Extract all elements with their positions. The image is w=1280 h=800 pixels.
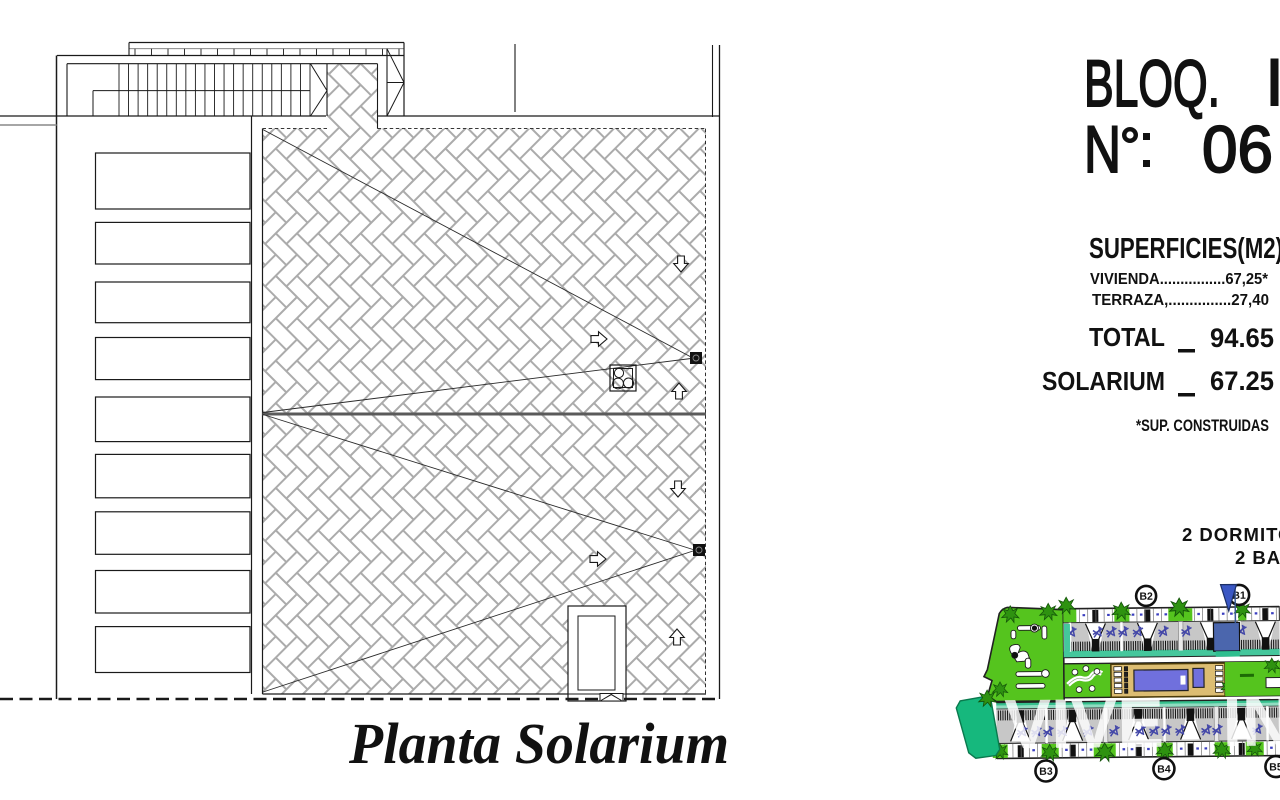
svg-text:B2: B2 <box>1139 591 1153 603</box>
svg-text:SOLARIUM: SOLARIUM <box>1042 368 1165 396</box>
svg-text:B5: B5 <box>1269 761 1280 773</box>
svg-text:N: N <box>1084 112 1121 186</box>
svg-text:TERRAZA,...............27,40: TERRAZA,...............27,40 <box>1092 292 1269 309</box>
svg-text:2 BAÑO: 2 BAÑO <box>1235 547 1280 568</box>
svg-text:SUPERFICIES(M2): SUPERFICIES(M2) <box>1089 233 1280 265</box>
svg-text:06: 06 <box>1202 112 1273 186</box>
svg-text:67.25: 67.25 <box>1210 366 1274 396</box>
svg-text:VIVE: VIVE <box>1004 684 1164 764</box>
svg-text:B4: B4 <box>1157 763 1171 775</box>
svg-text:VIVIENDA................67,25*: VIVIENDA................67,25* <box>1090 271 1269 288</box>
svg-text:Planta Solarium: Planta Solarium <box>348 711 729 776</box>
svg-text:94.65: 94.65 <box>1210 323 1274 353</box>
svg-text:B3: B3 <box>1039 766 1053 778</box>
svg-text:2 DORMITOR: 2 DORMITOR <box>1182 524 1280 545</box>
svg-text:TOTAL: TOTAL <box>1089 324 1165 352</box>
svg-text:BLOQ.: BLOQ. <box>1084 46 1220 120</box>
svg-text:*SUP. CONSTRUIDAS: *SUP. CONSTRUIDAS <box>1136 417 1269 435</box>
svg-text:IN: IN <box>1222 682 1280 761</box>
